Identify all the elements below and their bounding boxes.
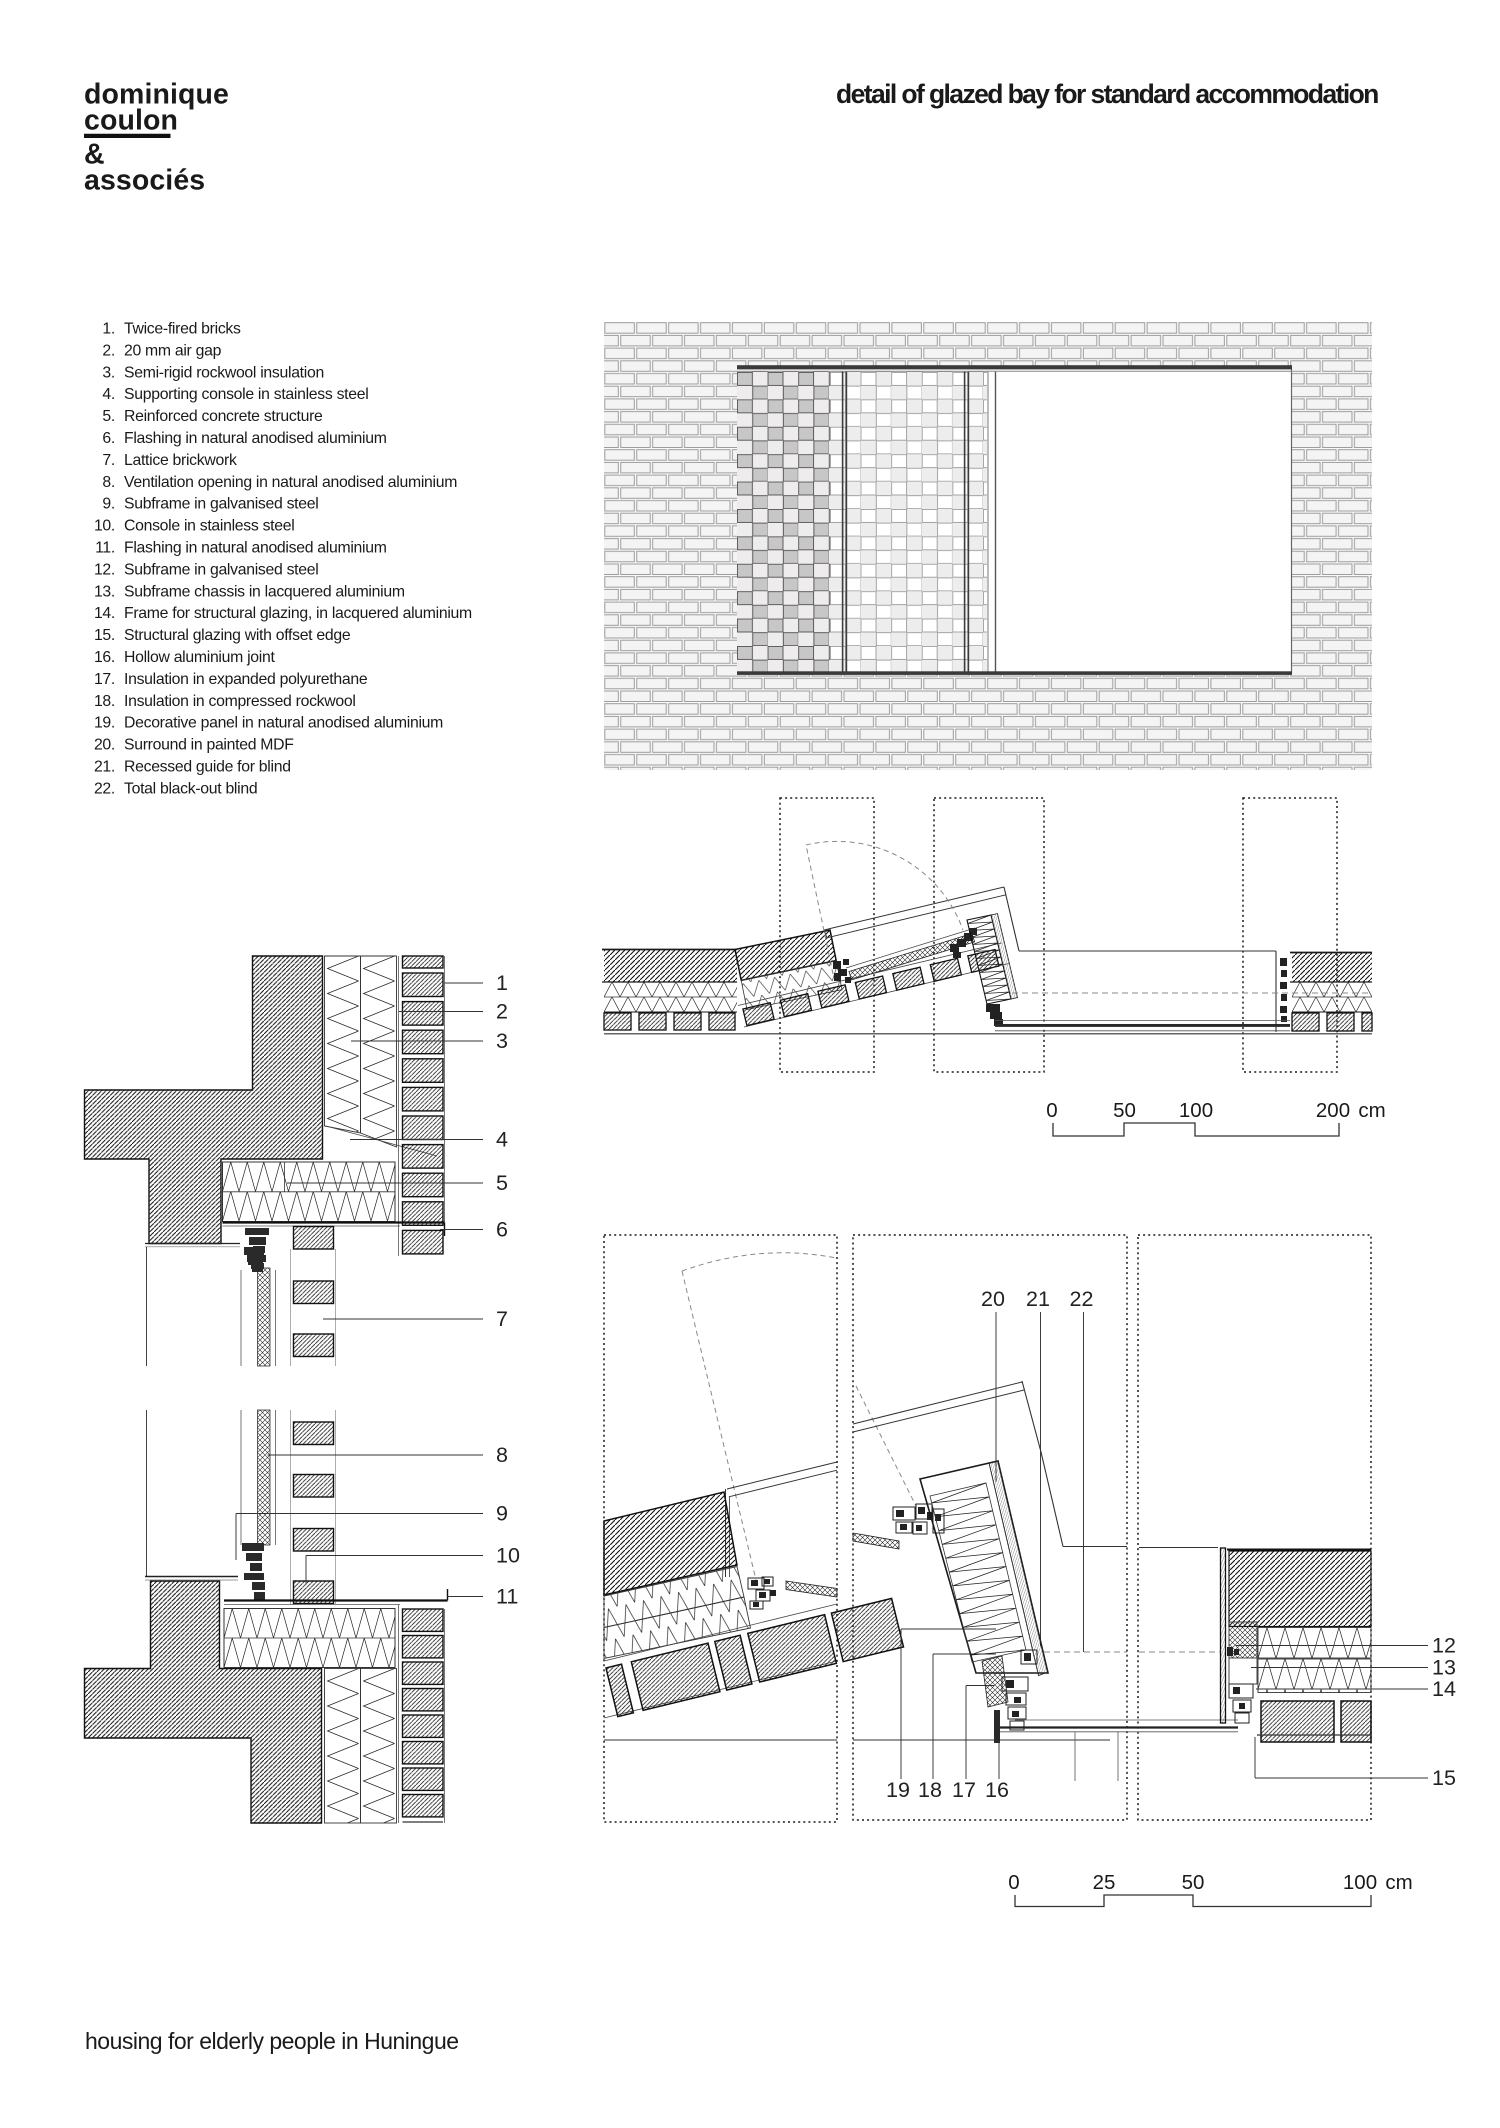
svg-text:11: 11 xyxy=(496,1585,518,1609)
svg-text:coulon: coulon xyxy=(84,105,178,137)
svg-text:20.: 20. xyxy=(94,737,115,754)
svg-text:5: 5 xyxy=(496,1171,508,1195)
svg-text:19: 19 xyxy=(886,1778,910,1802)
svg-text:18: 18 xyxy=(918,1778,942,1802)
svg-text:50: 50 xyxy=(1182,1871,1205,1894)
svg-text:Ventilation opening in natural: Ventilation opening in natural anodised … xyxy=(124,474,457,491)
svg-text:21.: 21. xyxy=(94,759,115,776)
svg-text:4: 4 xyxy=(496,1128,508,1152)
svg-text:0: 0 xyxy=(1008,1871,1019,1894)
svg-text:100: 100 xyxy=(1179,1099,1213,1122)
svg-text:0: 0 xyxy=(1046,1099,1057,1122)
svg-text:Supporting console in stainles: Supporting console in stainless steel xyxy=(124,386,368,403)
svg-text:housing for elderly people in: housing for elderly people in Huningue xyxy=(85,2028,459,2054)
svg-text:Subframe in galvanised steel: Subframe in galvanised steel xyxy=(124,561,318,578)
svg-text:Console in stainless steel: Console in stainless steel xyxy=(124,518,294,535)
svg-text:3.: 3. xyxy=(102,364,115,381)
svg-text:20 mm air gap: 20 mm air gap xyxy=(124,342,222,359)
svg-text:11.: 11. xyxy=(95,540,115,557)
svg-text:1: 1 xyxy=(496,971,508,995)
svg-text:200: 200 xyxy=(1316,1099,1350,1122)
svg-text:50: 50 xyxy=(1113,1099,1136,1122)
svg-text:22: 22 xyxy=(1070,1287,1094,1311)
svg-text:16: 16 xyxy=(985,1778,1009,1802)
svg-text:16.: 16. xyxy=(94,649,115,666)
svg-text:14.: 14. xyxy=(94,605,115,622)
svg-text:5.: 5. xyxy=(102,408,115,425)
svg-text:22.: 22. xyxy=(94,780,115,797)
svg-text:10: 10 xyxy=(496,1544,520,1568)
svg-text:Semi-rigid rockwool insulation: Semi-rigid rockwool insulation xyxy=(124,364,324,381)
svg-text:detail of glazed bay for stand: detail of glazed bay for standard accomm… xyxy=(836,79,1378,109)
svg-text:14: 14 xyxy=(1432,1677,1456,1701)
svg-text:Subframe in galvanised steel: Subframe in galvanised steel xyxy=(124,496,318,513)
svg-text:17: 17 xyxy=(952,1778,976,1802)
svg-text:Flashing in natural anodised a: Flashing in natural anodised aluminium xyxy=(124,540,387,557)
svg-text:17.: 17. xyxy=(94,671,115,688)
svg-text:15: 15 xyxy=(1432,1766,1456,1790)
svg-text:12: 12 xyxy=(1432,1634,1456,1658)
svg-text:1.: 1. xyxy=(102,321,115,338)
svg-text:Surround in painted MDF: Surround in painted MDF xyxy=(124,737,294,754)
svg-text:8: 8 xyxy=(496,1443,508,1467)
svg-text:20: 20 xyxy=(981,1287,1005,1311)
svg-text:2.: 2. xyxy=(102,342,115,359)
svg-text:7.: 7. xyxy=(102,452,115,469)
svg-text:9: 9 xyxy=(496,1502,508,1526)
svg-text:13.: 13. xyxy=(94,583,115,600)
svg-text:19.: 19. xyxy=(94,715,115,732)
svg-text:Flashing in natural anodised a: Flashing in natural anodised aluminium xyxy=(124,430,387,447)
svg-text:2: 2 xyxy=(496,1000,508,1024)
svg-text:cm: cm xyxy=(1358,1099,1385,1122)
svg-text:12.: 12. xyxy=(94,561,115,578)
svg-text:Reinforced concrete structure: Reinforced concrete structure xyxy=(124,408,323,425)
svg-text:6.: 6. xyxy=(102,430,115,447)
svg-text:Subframe chassis in lacquered: Subframe chassis in lacquered aluminium xyxy=(124,583,405,600)
svg-text:Twice-fired bricks: Twice-fired bricks xyxy=(124,321,241,338)
svg-text:Insulation in expanded polyure: Insulation in expanded polyurethane xyxy=(124,671,368,688)
svg-text:25: 25 xyxy=(1093,1871,1116,1894)
svg-text:cm: cm xyxy=(1385,1871,1412,1894)
svg-text:15.: 15. xyxy=(94,627,115,644)
svg-text:13: 13 xyxy=(1432,1656,1456,1680)
svg-text:associés: associés xyxy=(84,165,205,197)
svg-text:8.: 8. xyxy=(102,474,115,491)
svg-text:Lattice brickwork: Lattice brickwork xyxy=(124,452,237,469)
svg-text:Frame for structural glazing,: Frame for structural glazing, in lacquer… xyxy=(124,605,472,622)
svg-text:21: 21 xyxy=(1026,1287,1050,1311)
svg-text:18.: 18. xyxy=(94,693,115,710)
svg-text:6: 6 xyxy=(496,1218,508,1242)
svg-text:Insulation in compressed rockw: Insulation in compressed rockwool xyxy=(124,693,356,710)
svg-text:3: 3 xyxy=(496,1029,508,1053)
svg-text:Hollow aluminium joint: Hollow aluminium joint xyxy=(124,649,275,666)
svg-text:Recessed guide for blind: Recessed guide for blind xyxy=(124,759,291,776)
svg-text:4.: 4. xyxy=(102,386,115,403)
svg-text:100: 100 xyxy=(1343,1871,1377,1894)
svg-text:10.: 10. xyxy=(94,518,115,535)
svg-text:Decorative panel in natural an: Decorative panel in natural anodised alu… xyxy=(124,715,443,732)
svg-text:7: 7 xyxy=(496,1307,508,1331)
svg-text:9.: 9. xyxy=(102,496,115,513)
svg-text:Total black-out blind: Total black-out blind xyxy=(124,780,257,797)
svg-text:Structural glazing with offset: Structural glazing with offset edge xyxy=(124,627,351,644)
